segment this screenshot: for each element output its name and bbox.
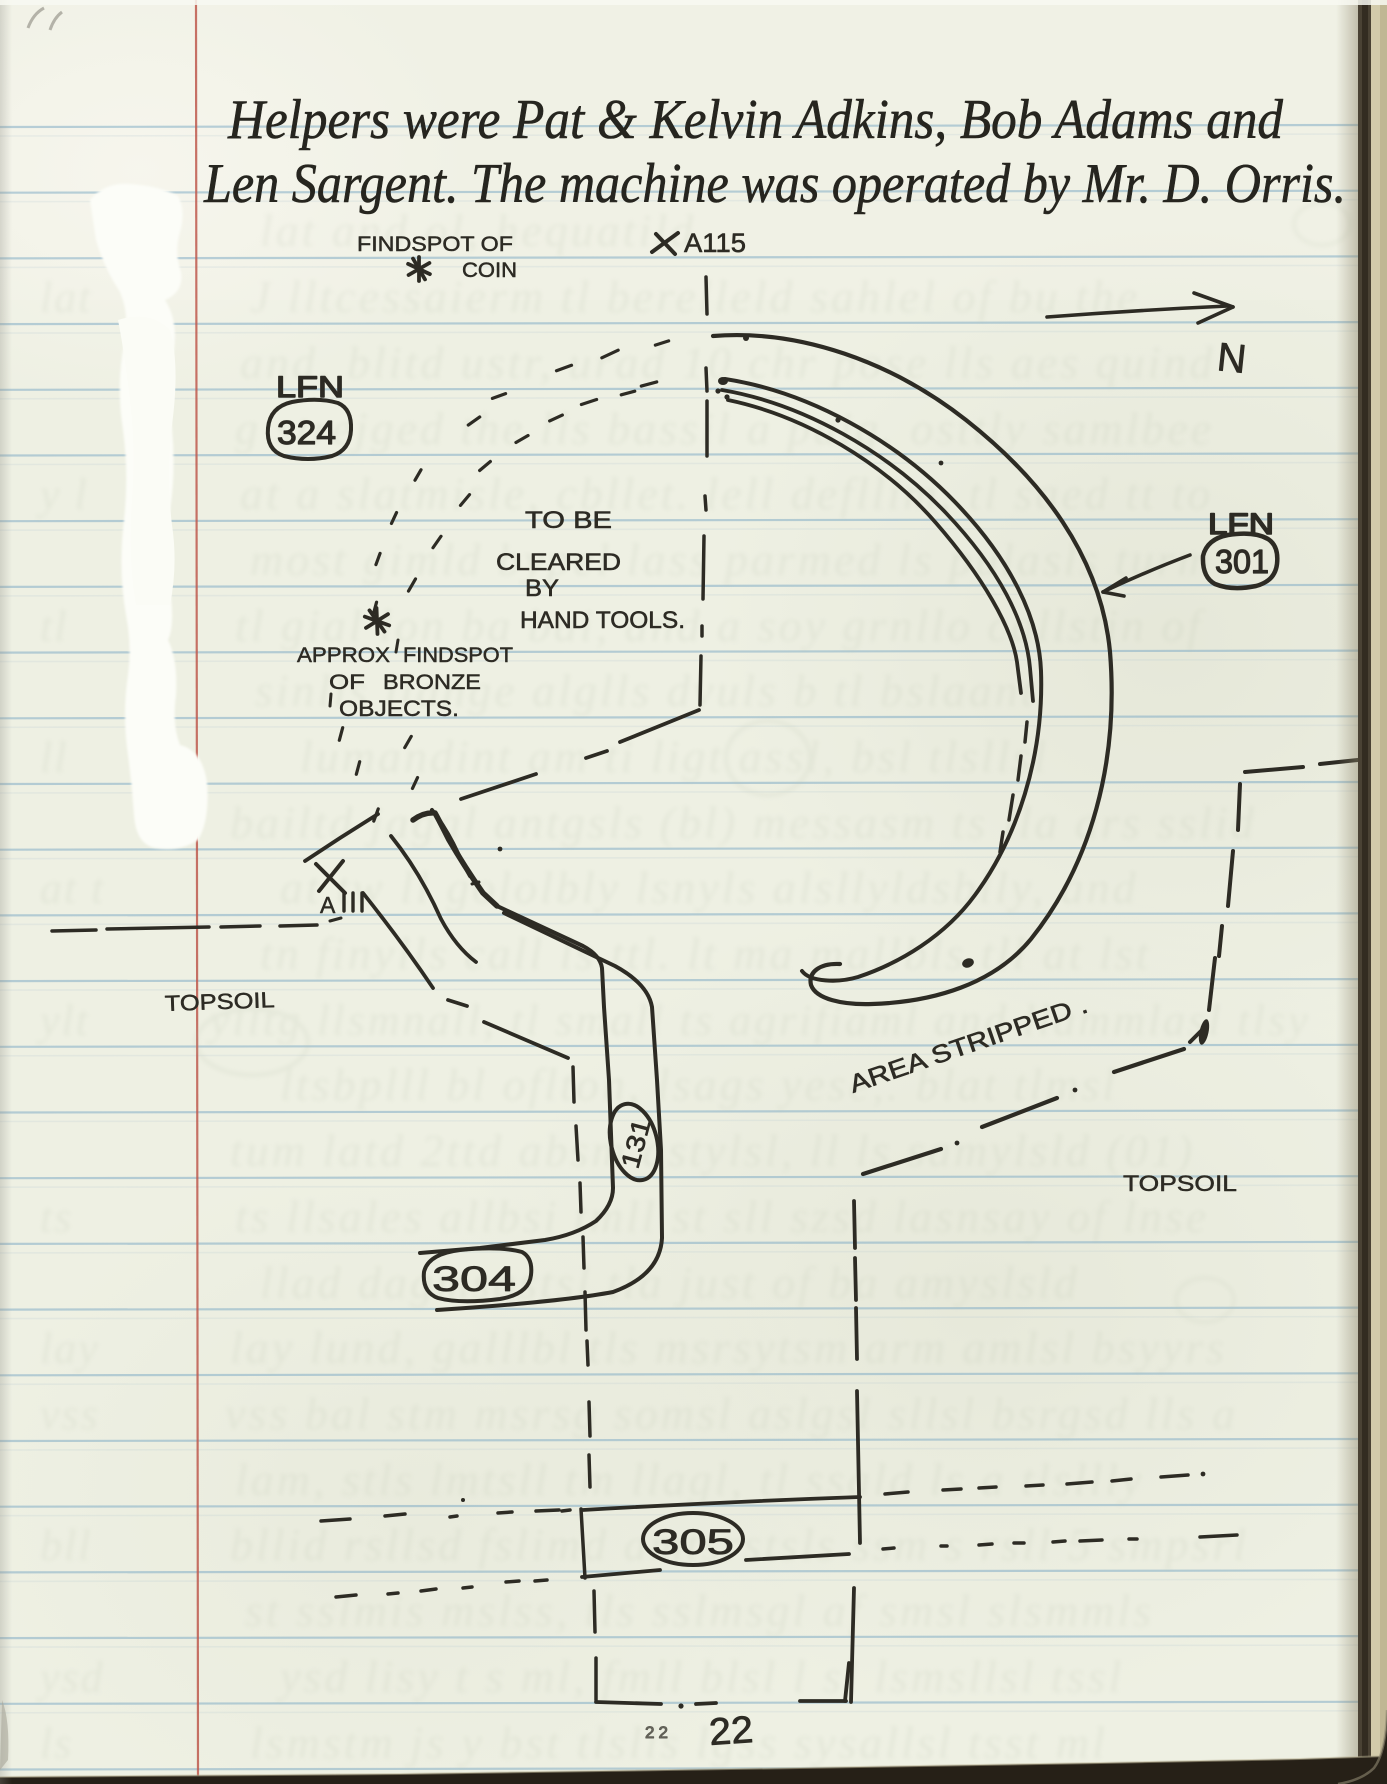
svg-text:ylt: ylt bbox=[36, 996, 90, 1045]
svg-text:ysd: ysd bbox=[36, 1653, 105, 1702]
svg-text:TOPSOIL: TOPSOIL bbox=[164, 987, 275, 1016]
svg-text:301: 301 bbox=[1215, 543, 1269, 580]
svg-text:ts llsales allbsi tmll st sll: ts llsales allbsi tmll st sll szsd lasns… bbox=[235, 1191, 1209, 1242]
svg-text:OBJECTS.: OBJECTS. bbox=[339, 696, 459, 721]
svg-text:Len Sargent. The machine was o: Len Sargent. The machine was operated by… bbox=[203, 153, 1346, 215]
svg-text:llad dagmsastsl tla just of ba: llad dagmsastsl tla just of ba amyslsld bbox=[260, 1257, 1080, 1308]
svg-text:HAND TOOLS.: HAND TOOLS. bbox=[520, 607, 685, 634]
svg-text:lsmstm js y bst tlslls lgss sy: lsmstm js y bst tlslls lgss sysallsl tss… bbox=[250, 1717, 1108, 1768]
svg-text:324: 324 bbox=[277, 414, 336, 451]
svg-text:at t: at t bbox=[40, 864, 105, 913]
svg-text:lat: lat bbox=[40, 273, 92, 322]
svg-text:ysd lisy t s ml, fmll blsl l s: ysd lisy t s ml, fmll blsl l sl lsmsllsl… bbox=[276, 1651, 1124, 1702]
svg-text:304: 304 bbox=[432, 1260, 516, 1299]
svg-text:at tw ll gololbly lsnyls alsll: at tw ll gololbly lsnyls alsllyldsblly, … bbox=[280, 862, 1139, 913]
svg-text:N: N bbox=[1215, 335, 1248, 382]
svg-text:305: 305 bbox=[652, 1523, 734, 1562]
svg-text:ll: ll bbox=[40, 733, 68, 782]
svg-text:tum latd 2ttd absm astylsl, ll: tum latd 2ttd absm astylsl, ll ls samyls… bbox=[230, 1125, 1195, 1176]
svg-text:J lltcessaierm tl berelleld sa: J lltcessaierm tl berelleld sahlel of bu… bbox=[250, 271, 1140, 322]
svg-text:COIN: COIN bbox=[462, 259, 517, 282]
svg-text:vss: vss bbox=[40, 1390, 100, 1439]
svg-text:TOPSOIL: TOPSOIL bbox=[1123, 1171, 1237, 1196]
svg-text:bailtd jagal antgsls (bl) mess: bailtd jagal antgsls (bl) messasm ts lla… bbox=[230, 797, 1257, 848]
svg-text:bll: bll bbox=[40, 1521, 92, 1570]
svg-text:OF: OF bbox=[329, 671, 365, 694]
svg-text:APPROX: APPROX bbox=[297, 644, 390, 667]
svg-text:lam, stls lmtsll tm llagl, tl: lam, stls lmtsll tm llagl, tl ssald ls a… bbox=[235, 1454, 1145, 1505]
svg-text:22: 22 bbox=[708, 1709, 755, 1754]
svg-text:FINDSPOT: FINDSPOT bbox=[403, 644, 513, 667]
svg-text:lay: lay bbox=[40, 1324, 100, 1373]
svg-text:lumandint am ti ligt assl, bsl: lumandint am ti ligt assl, bsl tlsllsl bbox=[300, 731, 1049, 782]
svg-text:vss bal stm msrsg somsl aslgsl: vss bal stm msrsg somsl aslgsl sllsl bsr… bbox=[225, 1388, 1238, 1439]
svg-text:TO BE: TO BE bbox=[525, 507, 612, 534]
svg-text:g strejged the lls bassil a pa: g strejged the lls bassil a paig. osttly… bbox=[235, 403, 1214, 454]
svg-text:st sslmis mslss, tls sslmsgl a: st sslmis mslss, tls sslmsgl af smsl sls… bbox=[245, 1585, 1154, 1636]
svg-text:lay lund, galllbl tls msrsytsm: lay lund, galllbl tls msrsytsm arm amlsl… bbox=[230, 1322, 1227, 1373]
svg-text:y l: y l bbox=[36, 470, 89, 519]
svg-text:ts: ts bbox=[40, 1193, 73, 1242]
svg-text:most gimld bypel lass parmed l: most gimld bypel lass parmed ls pulasls … bbox=[250, 534, 1214, 585]
svg-text:A: A bbox=[320, 892, 336, 918]
svg-text:ls: ls bbox=[40, 1719, 73, 1768]
svg-text:ylltg llsmnall, tl small ts ag: ylltg llsmnall, tl small ts agrifiaml an… bbox=[206, 996, 1311, 1045]
svg-text:ltsbplll bl oflton, lsags yese: ltsbplll bl oflton, lsags yese,. blat tl… bbox=[280, 1059, 1118, 1110]
svg-text:BY: BY bbox=[525, 575, 559, 602]
svg-text:22: 22 bbox=[645, 1723, 672, 1742]
svg-text:A115: A115 bbox=[684, 228, 746, 258]
svg-text:FINDSPOT OF: FINDSPOT OF bbox=[357, 233, 513, 256]
svg-text:CLEARED: CLEARED bbox=[496, 549, 621, 576]
svg-text:tl: tl bbox=[40, 602, 68, 651]
svg-text:at a slatmisle, cbllet. lell d: at a slatmisle, cbllet. lell defllim, tl… bbox=[240, 468, 1213, 519]
svg-text:BRONZE: BRONZE bbox=[383, 671, 481, 694]
svg-text:Helpers were Pat & Kelvin Adki: Helpers were Pat & Kelvin Adkins, Bob Ad… bbox=[227, 89, 1284, 151]
